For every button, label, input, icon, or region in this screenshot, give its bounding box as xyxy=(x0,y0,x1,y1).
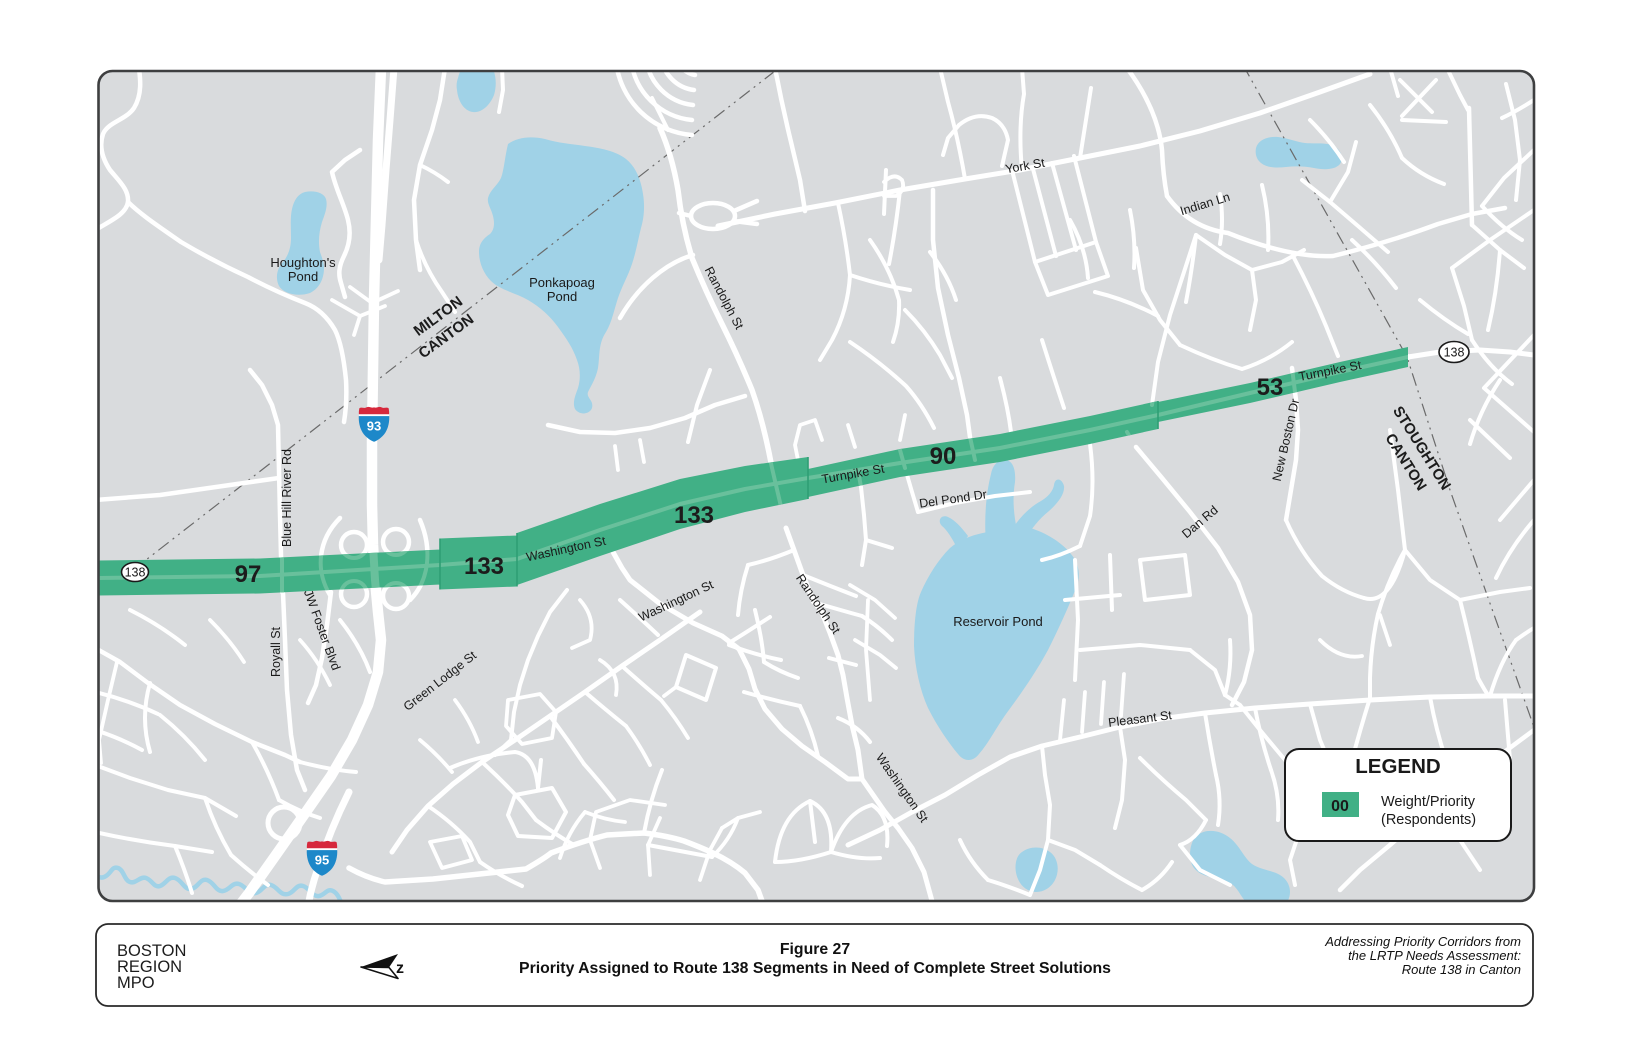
svg-text:Weight/Priority: Weight/Priority xyxy=(1381,794,1476,810)
svg-text:90: 90 xyxy=(930,443,957,470)
svg-text:Pond: Pond xyxy=(288,269,318,284)
svg-text:Royall St: Royall St xyxy=(269,626,283,677)
svg-text:Blue Hill River Rd: Blue Hill River Rd xyxy=(280,449,294,547)
svg-text:z: z xyxy=(396,960,404,977)
svg-text:93: 93 xyxy=(367,419,381,434)
svg-text:138: 138 xyxy=(1444,346,1465,360)
svg-text:the LRTP Needs Assessment:: the LRTP Needs Assessment: xyxy=(1348,948,1521,963)
svg-text:Priority Assigned to Route 138: Priority Assigned to Route 138 Segments … xyxy=(519,960,1111,977)
svg-text:Addressing Priority Corridors: Addressing Priority Corridors from xyxy=(1324,934,1521,949)
svg-text:Houghton's: Houghton's xyxy=(270,255,336,270)
svg-text:MPO: MPO xyxy=(117,974,155,992)
svg-text:(Respondents): (Respondents) xyxy=(1381,812,1476,828)
svg-text:133: 133 xyxy=(674,502,714,529)
svg-text:133: 133 xyxy=(464,553,504,580)
svg-text:53: 53 xyxy=(1257,374,1284,401)
svg-text:Route 138 in Canton: Route 138 in Canton xyxy=(1402,962,1521,977)
svg-text:Pond: Pond xyxy=(547,289,577,304)
svg-text:Figure 27: Figure 27 xyxy=(780,941,850,958)
svg-text:95: 95 xyxy=(315,853,329,868)
svg-text:Reservoir Pond: Reservoir Pond xyxy=(953,614,1043,629)
svg-text:Ponkapoag: Ponkapoag xyxy=(529,275,595,290)
svg-text:97: 97 xyxy=(235,561,262,588)
svg-text:138: 138 xyxy=(125,566,146,580)
svg-text:LEGEND: LEGEND xyxy=(1355,755,1440,778)
svg-text:00: 00 xyxy=(1331,798,1349,815)
